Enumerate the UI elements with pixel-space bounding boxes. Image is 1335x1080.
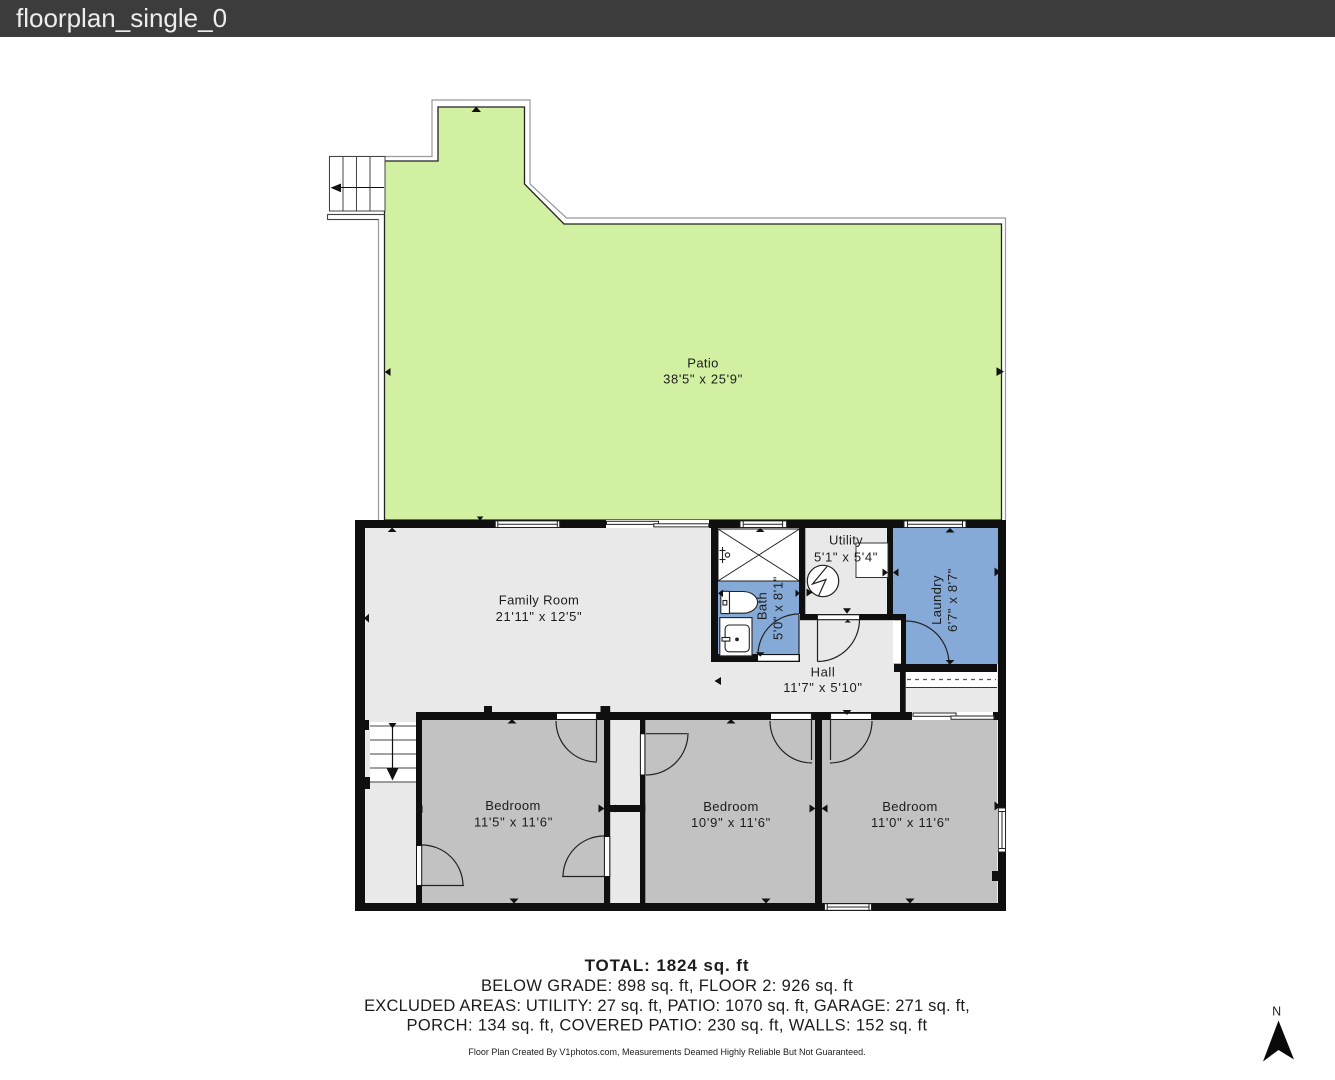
svg-text:11'0" x 11'6": 11'0" x 11'6"	[871, 815, 950, 830]
svg-text:PORCH: 134 sq. ft, COVERED PAT: PORCH: 134 sq. ft, COVERED PATIO: 230 sq…	[407, 1017, 928, 1035]
svg-text:Laundry: Laundry	[929, 575, 944, 625]
svg-text:21'11" x 12'5": 21'11" x 12'5"	[496, 609, 583, 624]
svg-text:EXCLUDED AREAS: UTILITY: 27 sq: EXCLUDED AREAS: UTILITY: 27 sq. ft, PATI…	[364, 997, 970, 1015]
svg-text:Patio: Patio	[687, 356, 718, 371]
svg-text:floorplan_single_0: floorplan_single_0	[16, 3, 227, 33]
svg-text:Bedroom: Bedroom	[485, 798, 541, 813]
svg-text:5'1" x 5'4": 5'1" x 5'4"	[814, 550, 878, 565]
svg-text:TOTAL: 1824 sq. ft: TOTAL: 1824 sq. ft	[585, 956, 750, 975]
svg-text:Floor Plan Created By V1photos: Floor Plan Created By V1photos.com, Meas…	[468, 1047, 865, 1057]
svg-text:Utility: Utility	[829, 533, 863, 548]
svg-text:BELOW GRADE: 898 sq. ft, FLOOR: BELOW GRADE: 898 sq. ft, FLOOR 2: 926 sq…	[481, 977, 853, 995]
svg-text:Family Room: Family Room	[499, 593, 579, 608]
svg-text:Bedroom: Bedroom	[882, 799, 938, 814]
svg-text:6'7" x 8'7": 6'7" x 8'7"	[945, 568, 960, 632]
svg-text:38'5" x 25'9": 38'5" x 25'9"	[663, 372, 743, 387]
svg-text:11'5" x 11'6": 11'5" x 11'6"	[474, 815, 553, 830]
svg-text:10'9" x 11'6": 10'9" x 11'6"	[691, 815, 771, 830]
svg-text:11'7" x 5'10": 11'7" x 5'10"	[783, 680, 862, 695]
svg-text:N: N	[1272, 1005, 1281, 1019]
svg-text:Bath: Bath	[755, 592, 770, 620]
svg-text:5'0" x 8'1": 5'0" x 8'1"	[771, 576, 786, 640]
svg-text:Bedroom: Bedroom	[703, 799, 759, 814]
svg-text:Hall: Hall	[811, 665, 836, 680]
